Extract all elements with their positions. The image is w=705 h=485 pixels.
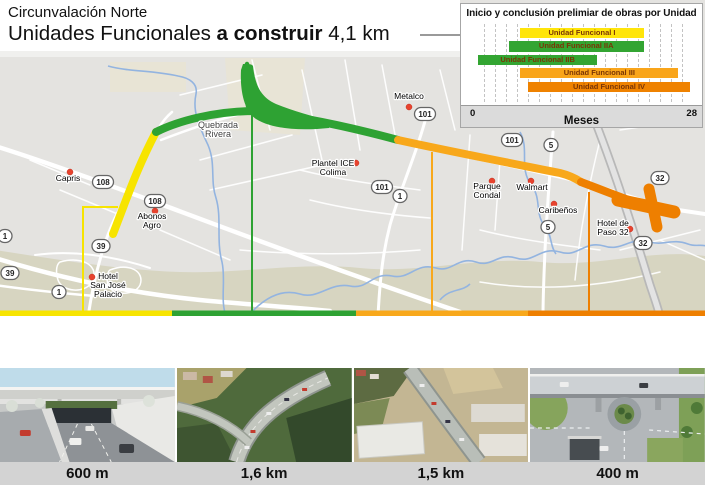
axis-label: Meses (461, 115, 702, 127)
title-to-chart-connector-line (420, 34, 461, 36)
svg-text:101: 101 (505, 136, 519, 145)
infographic-circunvalacion-norte: 1081081113939101101101553232QuebradaRive… (0, 0, 705, 485)
gantt-bar-4: Unidad Funcional III (520, 68, 678, 78)
chart-axis: 0 28 Meses (461, 105, 702, 127)
svg-text:39: 39 (97, 242, 106, 251)
photo-puente-q-rivera (177, 368, 352, 462)
svg-text:1: 1 (57, 288, 62, 297)
distance-caption-bar: 600 m1,6 km1,5 km400 m (0, 462, 705, 485)
road-shield-101: 101 (502, 134, 523, 147)
caption-puente-q-rivera: 1,6 km (177, 462, 352, 485)
photo-interseccion-rn-32 (530, 368, 705, 462)
svg-text:ParqueCondal: ParqueCondal (473, 181, 501, 200)
road-shield-39: 39 (1, 267, 19, 280)
page-title: Unidades Funcionales a construir 4,1 km (8, 22, 390, 46)
svg-text:1: 1 (398, 192, 403, 201)
photo-tramo-viaducto (354, 368, 529, 462)
road-shield-39: 39 (92, 240, 110, 253)
caption-interseccion-la-uruca: 600 m (0, 462, 175, 485)
gantt-bar-5: Unidad Funcional IV (528, 82, 690, 92)
map-poi-hotel-de-paso-32: Hotel dePaso 32 (597, 218, 633, 237)
svg-text:Walmart: Walmart (516, 182, 548, 192)
svg-text:39: 39 (6, 269, 15, 278)
svg-text:Caribeños: Caribeños (539, 205, 578, 215)
road-shield-5: 5 (541, 221, 555, 234)
svg-text:101: 101 (375, 183, 389, 192)
gantt-chart-panel: Inicio y conclusión prelimiar de obras p… (460, 3, 703, 128)
svg-text:108: 108 (148, 197, 162, 206)
svg-text:108: 108 (96, 178, 110, 187)
kicker-title: Circunvalación Norte (8, 4, 390, 22)
svg-text:32: 32 (639, 239, 648, 248)
road-shield-101: 101 (415, 108, 436, 121)
caption-tramo-viaducto: 1,5 km (354, 462, 529, 485)
svg-text:1: 1 (3, 232, 8, 241)
road-shield-1: 1 (52, 286, 66, 299)
gantt-bar-2: Unidad Funcional IIA (509, 41, 644, 51)
chart-bars: Unidad Funcional IUnidad Funcional IIAUn… (474, 24, 690, 104)
svg-text:Capris: Capris (56, 173, 81, 183)
road-shield-5: 5 (544, 139, 558, 152)
road-shield-108: 108 (93, 176, 114, 189)
road-shield-32: 32 (651, 172, 669, 185)
svg-text:Metalco: Metalco (394, 91, 424, 101)
page-header: Circunvalación Norte Unidades Funcionale… (8, 4, 390, 46)
road-shield-1: 1 (393, 190, 407, 203)
svg-text:32: 32 (656, 174, 665, 183)
chart-title: Inicio y conclusión prelimiar de obras p… (461, 8, 702, 19)
gantt-bar-1: Unidad Funcional I (520, 28, 643, 38)
road-shield-101: 101 (372, 181, 393, 194)
gantt-bar-3: Unidad Funcional IIB (478, 55, 598, 65)
svg-text:5: 5 (549, 141, 554, 150)
caption-interseccion-rn-32: 400 m (530, 462, 705, 485)
photo-strip (0, 368, 705, 462)
road-shield-108: 108 (145, 195, 166, 208)
svg-text:101: 101 (418, 110, 432, 119)
svg-text:Hotel dePaso 32: Hotel dePaso 32 (597, 218, 629, 237)
map-poi-parque-condal: ParqueCondal (473, 178, 501, 200)
photo-interseccion-la-uruca (0, 368, 175, 462)
unit-legend-band: IIntersecciónLa UrucaIIPuente Q. Riveray… (0, 316, 705, 368)
svg-text:5: 5 (546, 223, 551, 232)
road-shield-32: 32 (634, 237, 652, 250)
road-shield-1: 1 (0, 230, 12, 243)
